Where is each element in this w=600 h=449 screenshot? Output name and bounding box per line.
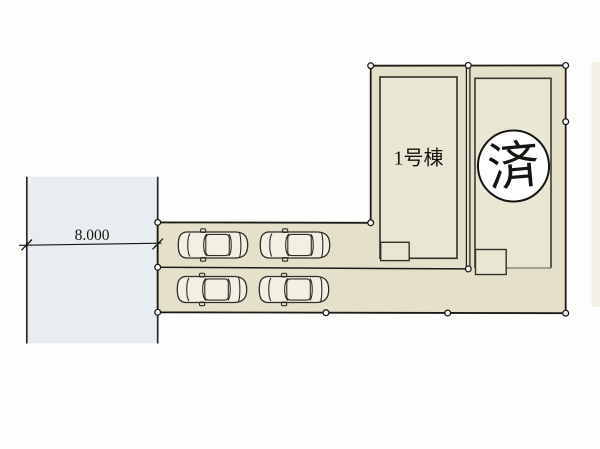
boundary-marker — [368, 220, 374, 226]
site-plan-canvas: 1号棟 済 8.000 — [0, 0, 600, 449]
building-2-porch — [476, 250, 507, 275]
boundary-marker — [465, 266, 471, 272]
building-2: 済 — [475, 78, 552, 274]
boundary-marker — [155, 220, 161, 226]
road-width-label: 8.000 — [75, 227, 110, 244]
car-icon — [177, 273, 246, 305]
sold-stamp-label: 済 — [485, 137, 542, 198]
building-1-porch — [381, 242, 410, 260]
scan-edge-strip — [592, 62, 600, 307]
boundary-marker — [445, 310, 451, 316]
car-icon — [260, 229, 329, 261]
boundary-marker — [323, 310, 329, 316]
boundary-marker — [368, 63, 374, 69]
boundary-marker — [465, 63, 471, 69]
boundary-marker — [563, 310, 569, 316]
building-1: 1号棟 — [380, 77, 457, 261]
boundary-marker — [155, 309, 161, 315]
boundary-marker — [155, 264, 161, 270]
building-1-label: 1号棟 — [394, 147, 444, 170]
road-area — [27, 177, 158, 344]
boundary-marker — [563, 119, 569, 125]
car-icon — [178, 229, 247, 261]
car-icon — [259, 273, 328, 305]
boundary-marker — [563, 63, 569, 69]
site-plan-page: 1号棟 済 8.000 — [0, 0, 600, 449]
